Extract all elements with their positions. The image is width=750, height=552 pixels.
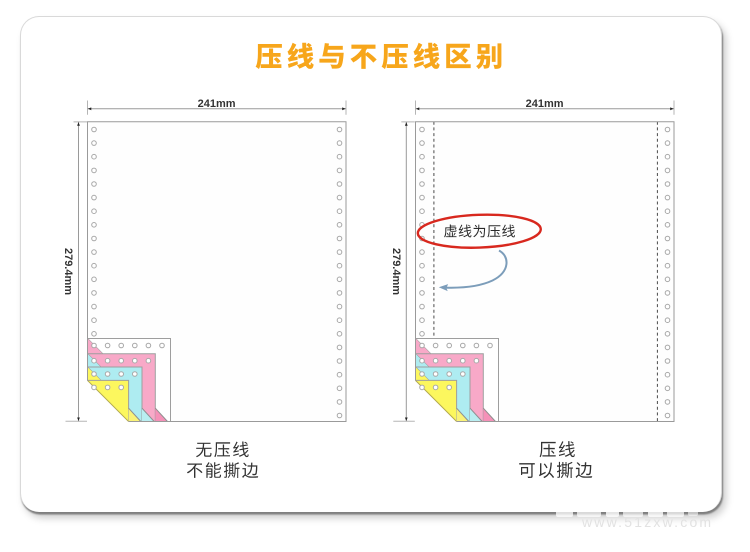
svg-text:279.4mm: 279.4mm	[62, 248, 74, 295]
svg-text:279.4mm: 279.4mm	[390, 248, 402, 295]
svg-text:241mm: 241mm	[526, 98, 564, 110]
svg-text:241mm: 241mm	[198, 98, 236, 110]
